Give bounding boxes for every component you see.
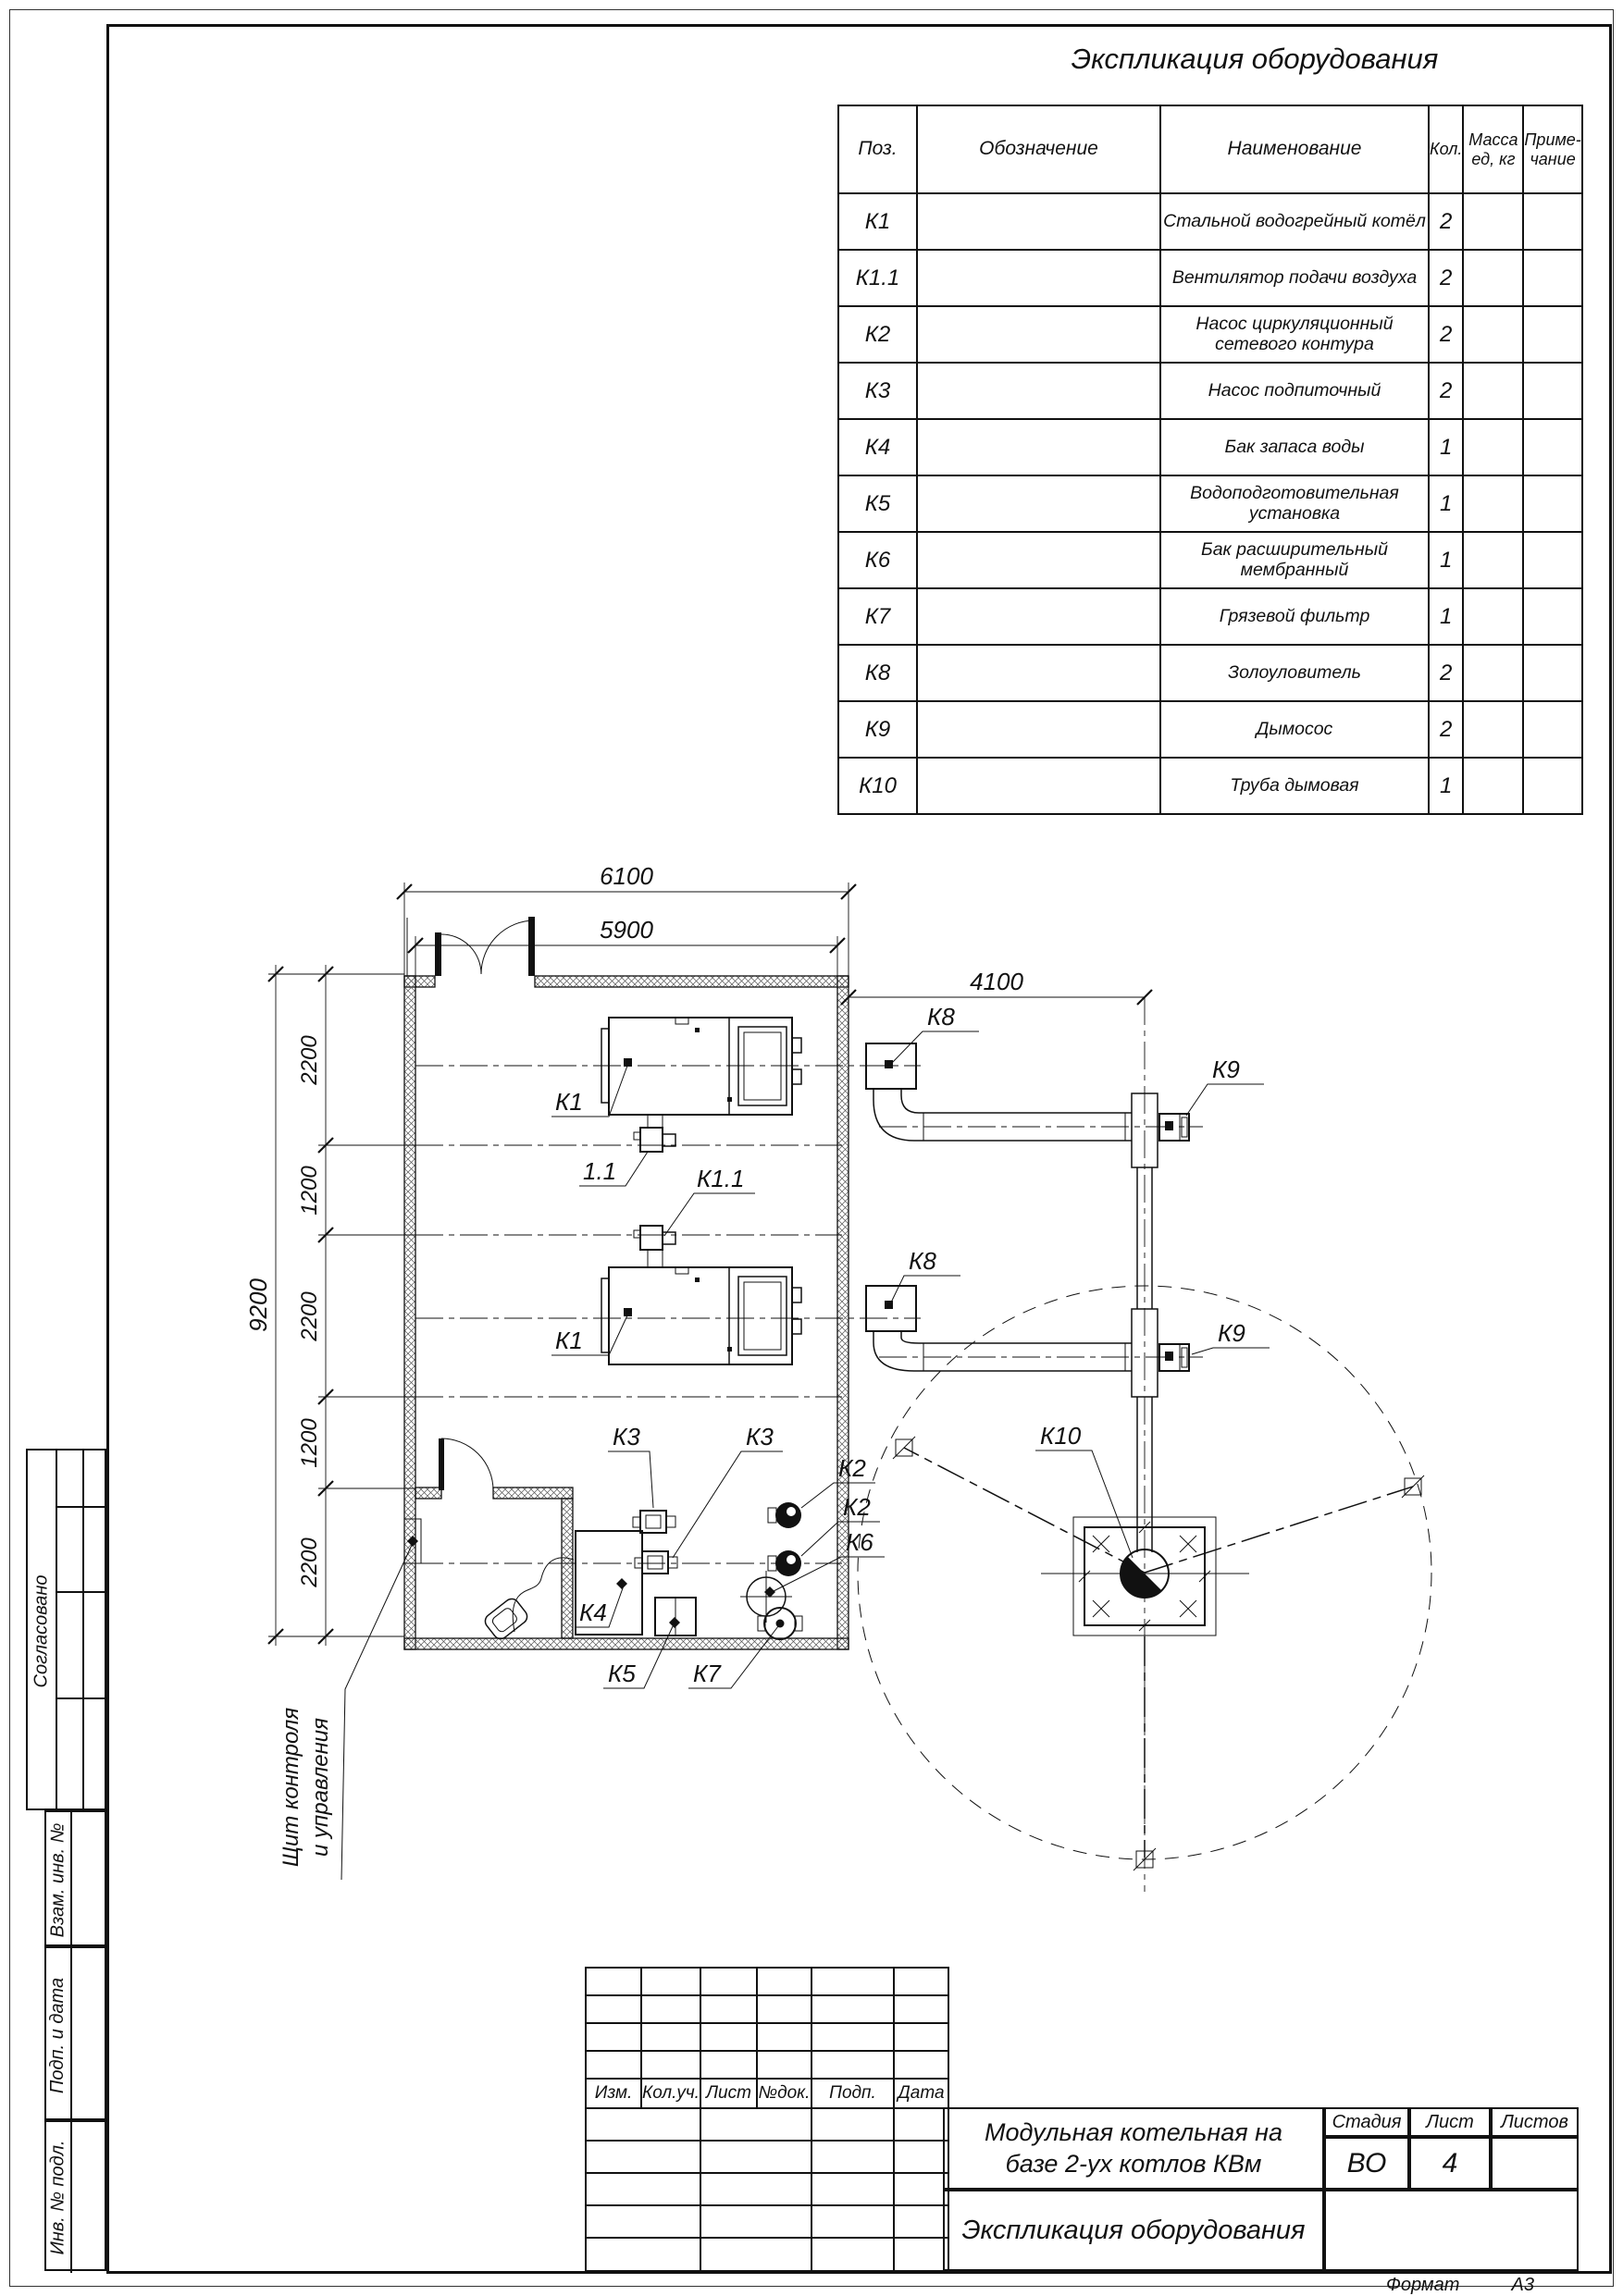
equipment-table: Поз. Обозначение Наименование Кол. Масса… <box>837 105 1583 815</box>
row-name: Грязевой фильтр <box>1160 588 1429 645</box>
format-note: Формат А3 <box>1386 2275 1534 2296</box>
doc-title-box: Экспликация оборудования <box>943 2190 1324 2271</box>
guy-anchors <box>893 1437 1424 1870</box>
vzam-box: Взам. инв. № <box>44 1810 106 1946</box>
stage-label-cell: Стадия <box>1324 2107 1409 2137</box>
dim-6100: 6100 <box>600 862 653 890</box>
rev-header-podp: Подп. <box>811 2079 894 2108</box>
row-name: Дымосос <box>1160 701 1429 758</box>
dim-9200: 9200 <box>244 1278 272 1332</box>
interior-door <box>439 1438 493 1490</box>
format-label: Формат <box>1386 2275 1459 2296</box>
sheets-label-cell: Листов <box>1491 2107 1579 2137</box>
col-header-name: Наименование <box>1160 105 1429 193</box>
table-row: К8Золоуловитель2 <box>838 645 1582 701</box>
label-k5: К5 <box>608 1660 636 1687</box>
row-note <box>1523 588 1581 645</box>
table-row: К1.1Вентилятор подачи воздуха2 <box>838 250 1582 306</box>
revision-table: Изм. Кол.уч. Лист №док. Подп. Дата <box>585 1967 949 2272</box>
table-row: К10Труба дымовая1 <box>838 758 1582 814</box>
row-designation <box>917 588 1160 645</box>
entrance-door <box>407 917 535 976</box>
row-pos: К10 <box>838 758 917 814</box>
row-name: Золоуловитель <box>1160 645 1429 701</box>
row-qty: 1 <box>1429 532 1463 588</box>
row-name: Водоподготовительная установка <box>1160 475 1429 532</box>
row-pos: К3 <box>838 363 917 419</box>
row-designation <box>917 419 1160 475</box>
label-k4: К4 <box>579 1599 607 1626</box>
label-k8-bottom: К8 <box>909 1247 936 1275</box>
project-title-line2: базе 2-ух котлов КВм <box>985 2149 1282 2180</box>
dim-5900: 5900 <box>600 916 653 944</box>
dim-seg1: 2200 <box>297 1035 322 1086</box>
podp-label: Подп. и дата <box>46 1948 70 2122</box>
format-value: А3 <box>1512 2275 1534 2296</box>
row-name: Стальной водогрейный котёл <box>1160 193 1429 250</box>
row-name: Бак расширительный мембранный <box>1160 532 1429 588</box>
guy-wires <box>904 1448 1413 1858</box>
label-k3-a: К3 <box>613 1423 640 1450</box>
sheet-label-cell: Лист <box>1409 2107 1491 2137</box>
label-k10: К10 <box>1040 1422 1082 1450</box>
row-designation <box>917 363 1160 419</box>
row-designation <box>917 645 1160 701</box>
row-pos: К4 <box>838 419 917 475</box>
rev-header-izm: Изм. <box>586 2079 641 2108</box>
row-pos: К7 <box>838 588 917 645</box>
row-qty: 2 <box>1429 193 1463 250</box>
label-k6: К6 <box>846 1528 873 1556</box>
row-pos: К8 <box>838 645 917 701</box>
table-row: К7Грязевой фильтр1 <box>838 588 1582 645</box>
label-k3-b: К3 <box>746 1423 774 1450</box>
inv-box: Инв. № подл. <box>44 2120 106 2271</box>
row-mass <box>1463 701 1523 758</box>
row-name: Бак запаса воды <box>1160 419 1429 475</box>
feed-pump-2 <box>635 1551 677 1574</box>
rev-header-data: Дата <box>894 2079 948 2108</box>
inv-label: Инв. № подл. <box>46 2122 70 2273</box>
row-qty: 2 <box>1429 645 1463 701</box>
row-qty: 2 <box>1429 306 1463 363</box>
col-header-mass: Масса ед, кг <box>1463 105 1523 193</box>
label-k9-bottom: К9 <box>1218 1319 1245 1347</box>
rev-header-ndoc: №док. <box>757 2079 811 2108</box>
row-mass <box>1463 645 1523 701</box>
agreed-box: Согласовано <box>26 1449 106 1810</box>
water-treatment-unit <box>655 1598 696 1636</box>
row-qty: 2 <box>1429 701 1463 758</box>
row-mass <box>1463 475 1523 532</box>
label-k2-b: К2 <box>843 1493 871 1521</box>
row-qty: 1 <box>1429 419 1463 475</box>
row-mass <box>1463 363 1523 419</box>
sink <box>482 1596 530 1641</box>
row-qty: 1 <box>1429 588 1463 645</box>
sheets-value-cell <box>1491 2137 1579 2190</box>
row-mass <box>1463 306 1523 363</box>
col-header-designation: Обозначение <box>917 105 1160 193</box>
row-note <box>1523 363 1581 419</box>
row-note <box>1523 250 1581 306</box>
table-row: К5Водоподготовительная установка1 <box>838 475 1582 532</box>
row-qty: 2 <box>1429 363 1463 419</box>
stage-value-cell: ВО <box>1324 2137 1409 2190</box>
dim-seg3: 2200 <box>297 1291 322 1342</box>
control-panel-note-line2: и управления <box>308 1718 333 1857</box>
row-mass <box>1463 250 1523 306</box>
label-k1-1: К1.1 <box>697 1165 744 1192</box>
row-name: Насос подпиточный <box>1160 363 1429 419</box>
ash-collector-2 <box>866 1286 923 1371</box>
leader-lines <box>341 1031 1270 1880</box>
row-note <box>1523 419 1581 475</box>
row-pos: К1 <box>838 193 917 250</box>
label-k7: К7 <box>693 1660 722 1687</box>
row-pos: К9 <box>838 701 917 758</box>
row-note <box>1523 306 1581 363</box>
row-designation <box>917 758 1160 814</box>
row-designation <box>917 306 1160 363</box>
smoke-exhauster-1 <box>1159 1114 1189 1141</box>
project-title-box: Модульная котельная на базе 2-ух котлов … <box>943 2107 1324 2190</box>
row-designation <box>917 193 1160 250</box>
label-fan-11: 1.1 <box>583 1157 616 1185</box>
axis-lines <box>415 997 1203 1892</box>
row-pos: К5 <box>838 475 917 532</box>
row-pos: К1.1 <box>838 250 917 306</box>
smoke-exhauster-2 <box>1159 1344 1189 1371</box>
dim-4100: 4100 <box>970 968 1023 995</box>
row-designation <box>917 250 1160 306</box>
sheet-value-cell: 4 <box>1409 2137 1491 2190</box>
label-k9-top: К9 <box>1212 1055 1240 1083</box>
label-k1-bottom: К1 <box>555 1327 583 1354</box>
ash-collector-1 <box>866 1043 923 1141</box>
drawing-sheet: 6100 5900 4100 9200 2200 1200 2200 1200 … <box>0 0 1623 2296</box>
row-mass <box>1463 419 1523 475</box>
col-header-qty: Кол. <box>1429 105 1463 193</box>
col-header-note: Приме- чание <box>1523 105 1581 193</box>
table-row: К1Стальной водогрейный котёл2 <box>838 193 1582 250</box>
label-k1-top: К1 <box>555 1088 583 1116</box>
control-panel-note-line1: Щит контроля <box>279 1708 304 1867</box>
equipment-table-title: Экспликация оборудования <box>1018 43 1492 76</box>
dimension-lines <box>268 883 1152 1646</box>
row-note <box>1523 532 1581 588</box>
row-qty: 1 <box>1429 475 1463 532</box>
rev-header-kol: Кол.уч. <box>641 2079 700 2108</box>
project-title-line1: Модульная котельная на <box>985 2117 1282 2149</box>
title-block-empty-box <box>1324 2190 1579 2271</box>
row-mass <box>1463 193 1523 250</box>
row-pos: К6 <box>838 532 917 588</box>
podp-box: Подп. и дата <box>44 1946 106 2120</box>
row-designation <box>917 701 1160 758</box>
row-mass <box>1463 758 1523 814</box>
row-name: Вентилятор подачи воздуха <box>1160 250 1429 306</box>
table-row: К9Дымосос2 <box>838 701 1582 758</box>
rev-header-list: Лист <box>700 2079 757 2108</box>
dim-seg2: 1200 <box>297 1166 322 1216</box>
air-fan-1 <box>634 1115 675 1152</box>
label-k8-top: К8 <box>927 1003 955 1031</box>
table-row: К3Насос подпиточный2 <box>838 363 1582 419</box>
table-row: К4Бак запаса воды1 <box>838 419 1582 475</box>
row-designation <box>917 532 1160 588</box>
dim-seg5: 2200 <box>297 1537 322 1588</box>
row-note <box>1523 645 1581 701</box>
row-mass <box>1463 588 1523 645</box>
table-row: К2Насос циркуляционный сетевого контура2 <box>838 306 1582 363</box>
chimney <box>1041 1517 1249 1636</box>
vzam-label: Взам. инв. № <box>46 1812 70 1948</box>
air-fan-2 <box>634 1226 675 1267</box>
dim-seg4: 1200 <box>297 1418 322 1468</box>
row-qty: 1 <box>1429 758 1463 814</box>
row-name: Труба дымовая <box>1160 758 1429 814</box>
mud-filter <box>758 1608 802 1639</box>
row-pos: К2 <box>838 306 917 363</box>
col-header-pos: Поз. <box>838 105 917 193</box>
row-mass <box>1463 532 1523 588</box>
agreed-label: Согласовано <box>28 1450 56 1812</box>
row-note <box>1523 475 1581 532</box>
row-note <box>1523 758 1581 814</box>
feed-pump-1 <box>633 1511 675 1533</box>
row-note <box>1523 701 1581 758</box>
network-pump-1 <box>768 1502 801 1528</box>
row-note <box>1523 193 1581 250</box>
row-qty: 2 <box>1429 250 1463 306</box>
label-k2-a: К2 <box>838 1454 866 1482</box>
table-row: К6Бак расширительный мембранный1 <box>838 532 1582 588</box>
row-designation <box>917 475 1160 532</box>
row-name: Насос циркуляционный сетевого контура <box>1160 306 1429 363</box>
